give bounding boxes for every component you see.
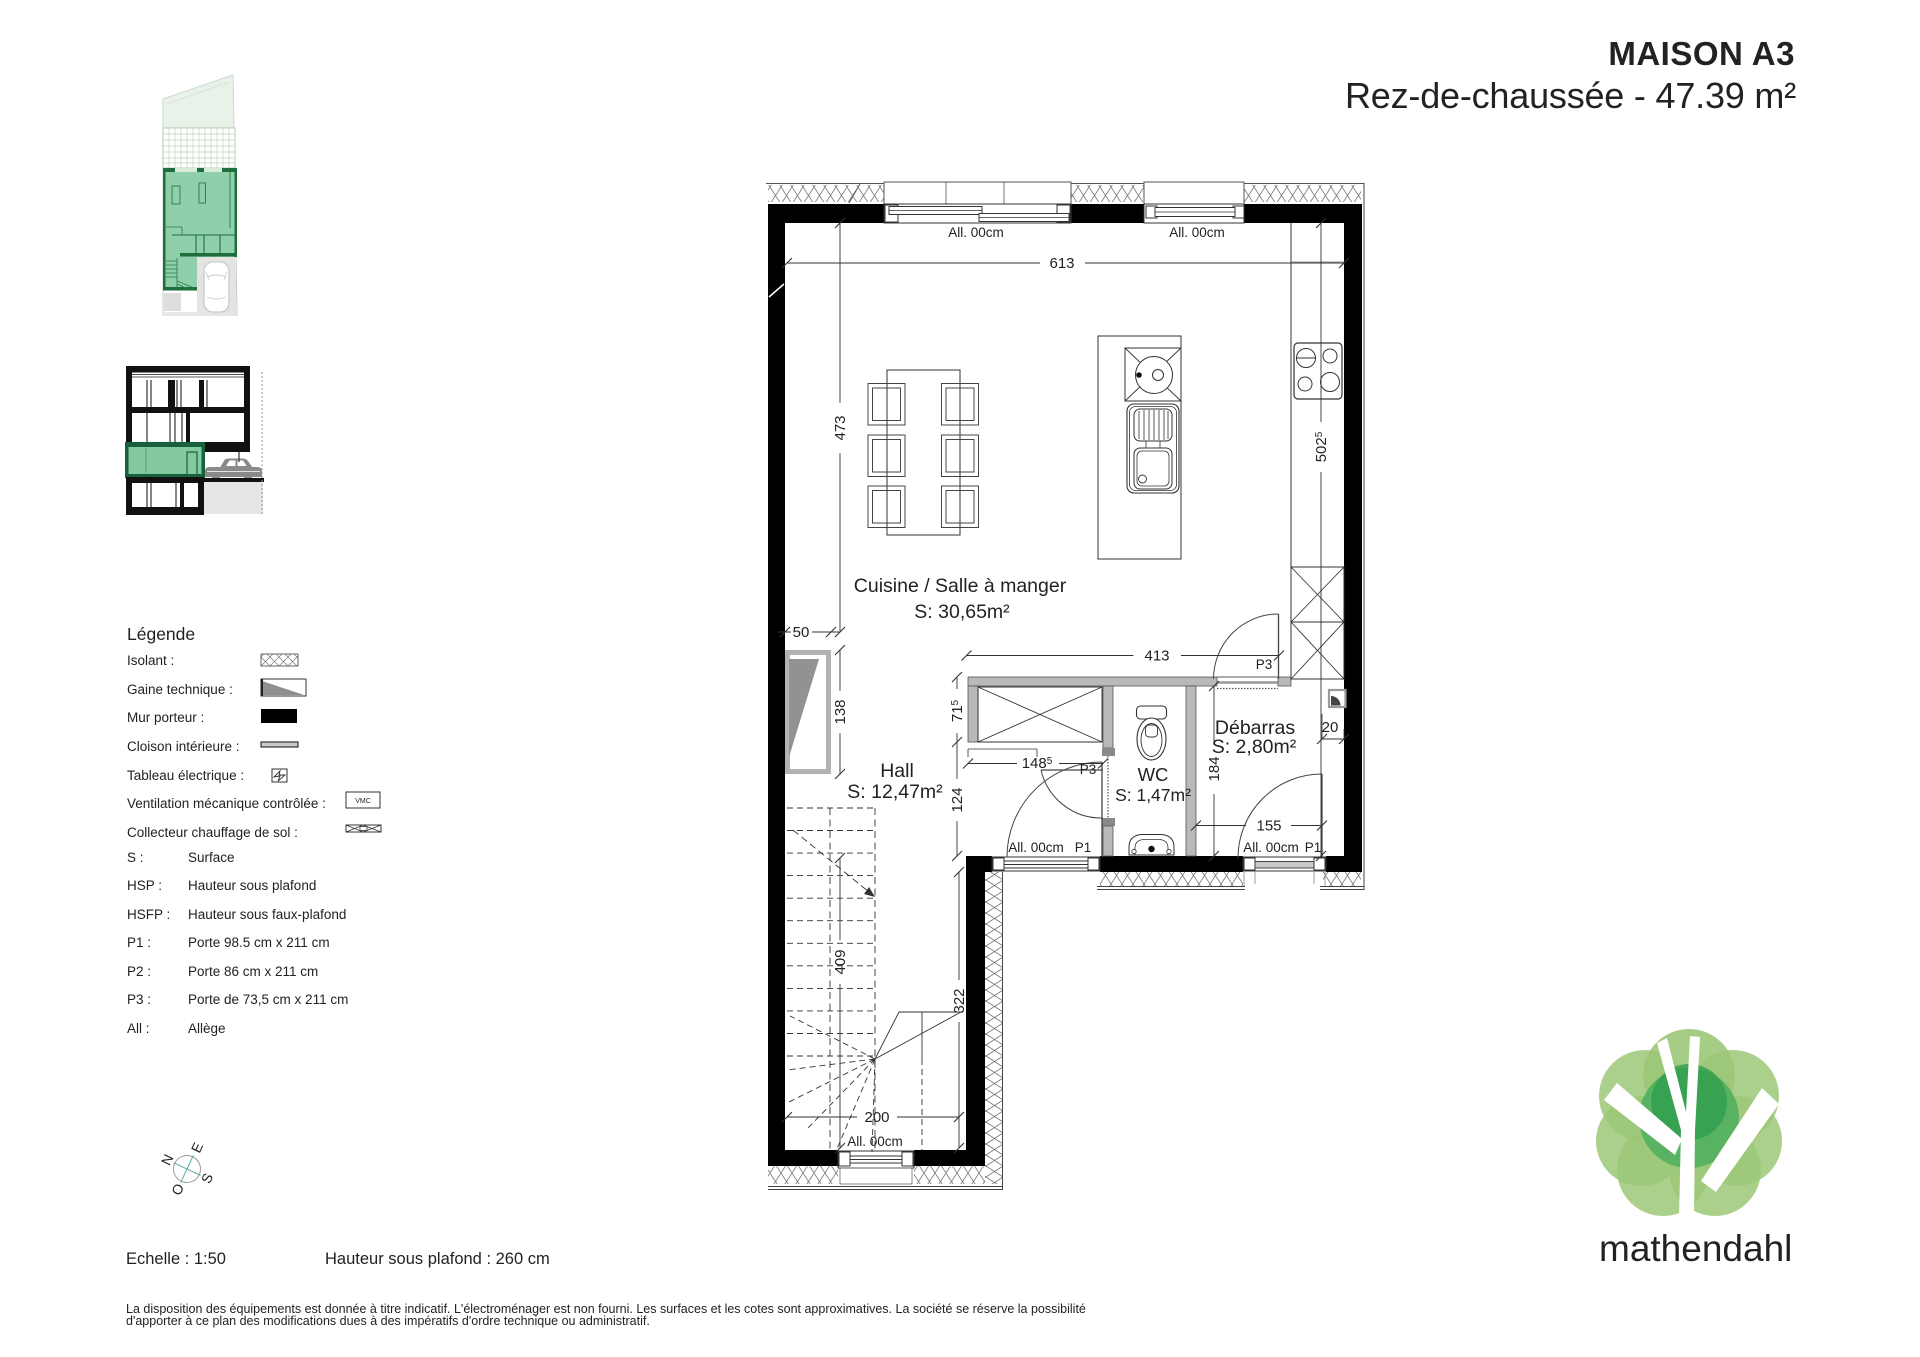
svg-text:All. 00cm: All. 00cm <box>948 225 1004 240</box>
svg-text:Hauteur sous plafond : 260 cm: Hauteur sous plafond : 260 cm <box>325 1250 550 1268</box>
svg-text:All. 00cm: All. 00cm <box>1243 840 1299 855</box>
svg-text:P3: P3 <box>1256 657 1273 672</box>
svg-text:S :: S : <box>127 850 144 865</box>
svg-text:mathendahl: mathendahl <box>1599 1228 1792 1269</box>
svg-text:All. 00cm: All. 00cm <box>847 1134 903 1149</box>
svg-text:S: 12,47m²: S: 12,47m² <box>847 781 943 803</box>
svg-text:155: 155 <box>1256 818 1281 835</box>
svg-text:Hall: Hall <box>880 760 914 782</box>
svg-text:20: 20 <box>1322 719 1339 736</box>
svg-text:413: 413 <box>1144 648 1169 665</box>
svg-text:Collecteur chauffage de sol :: Collecteur chauffage de sol : <box>127 825 298 840</box>
svg-text:MAISON A3: MAISON A3 <box>1608 35 1795 72</box>
svg-text:Hauteur sous plafond: Hauteur sous plafond <box>188 878 316 893</box>
svg-text:HSFP :: HSFP : <box>127 907 170 922</box>
svg-text:613: 613 <box>1049 255 1074 272</box>
svg-text:50: 50 <box>793 624 810 641</box>
svg-text:Tableau électrique :: Tableau électrique : <box>127 768 244 783</box>
svg-text:200: 200 <box>864 1109 889 1126</box>
svg-text:138: 138 <box>832 699 849 724</box>
svg-text:P3 :: P3 : <box>127 992 151 1007</box>
svg-text:Porte 86 cm x 211 cm: Porte 86 cm x 211 cm <box>188 964 318 979</box>
svg-text:473: 473 <box>832 415 849 440</box>
svg-text:124: 124 <box>949 787 966 812</box>
svg-text:All. 00cm: All. 00cm <box>1169 225 1225 240</box>
svg-text:P1: P1 <box>1305 840 1322 855</box>
svg-text:P1 :: P1 : <box>127 935 151 950</box>
svg-text:S: 1,47m²: S: 1,47m² <box>1115 785 1191 805</box>
svg-text:P2 :: P2 : <box>127 964 151 979</box>
svg-text:WC: WC <box>1138 764 1169 785</box>
svg-text:d'apporter à ce plan des modif: d'apporter à ce plan des modifications d… <box>126 1314 650 1328</box>
svg-text:All :: All : <box>127 1021 150 1036</box>
svg-text:Cuisine / Salle à manger: Cuisine / Salle à manger <box>854 575 1067 597</box>
svg-text:Surface: Surface <box>188 850 235 865</box>
svg-text:Allège: Allège <box>188 1021 226 1036</box>
svg-text:409: 409 <box>832 949 849 974</box>
svg-text:Cloison intérieure :: Cloison intérieure : <box>127 739 240 754</box>
svg-text:S: 30,65m²: S: 30,65m² <box>914 601 1010 623</box>
svg-text:S: 2,80m²: S: 2,80m² <box>1212 736 1297 758</box>
svg-text:184: 184 <box>1206 756 1223 781</box>
svg-text:VMC: VMC <box>355 798 371 805</box>
svg-text:P3: P3 <box>1080 762 1097 777</box>
svg-text:P1: P1 <box>1075 840 1092 855</box>
svg-text:All. 00cm: All. 00cm <box>1008 840 1064 855</box>
svg-text:HSP :: HSP : <box>127 878 162 893</box>
svg-text:Hauteur sous faux-plafond: Hauteur sous faux-plafond <box>188 907 346 922</box>
svg-text:Rez-de-chaussée - 47.39 m²: Rez-de-chaussée - 47.39 m² <box>1345 75 1796 116</box>
svg-text:Porte 98.5 cm x 211 cm: Porte 98.5 cm x 211 cm <box>188 935 330 950</box>
svg-text:Ventilation mécanique contrôlé: Ventilation mécanique contrôlée : <box>127 796 326 811</box>
svg-text:322: 322 <box>951 988 968 1013</box>
svg-text:Mur porteur :: Mur porteur : <box>127 710 204 725</box>
svg-text:Légende: Légende <box>127 624 195 644</box>
svg-text:Echelle : 1:50: Echelle : 1:50 <box>126 1250 226 1268</box>
svg-text:Isolant :: Isolant : <box>127 653 174 668</box>
svg-text:Gaine technique :: Gaine technique : <box>127 682 233 697</box>
svg-text:Porte de 73,5 cm x 211 cm: Porte de 73,5 cm x 211 cm <box>188 992 348 1007</box>
